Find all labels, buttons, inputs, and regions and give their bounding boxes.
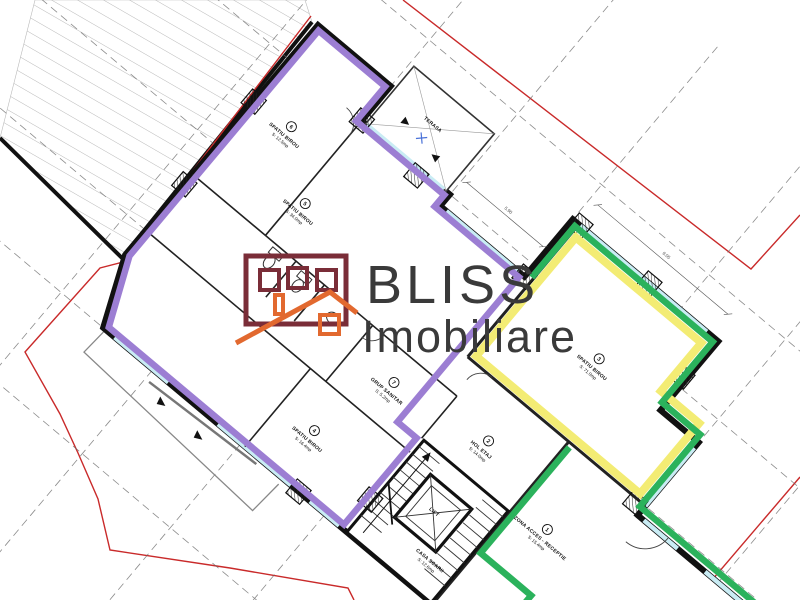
floor-plan-image: TERASA xyxy=(0,0,800,600)
floor-plan-svg: TERASA xyxy=(0,0,800,600)
watermark-subtitle: Imobiliare xyxy=(362,311,577,362)
watermark-title: BLISS xyxy=(366,255,539,315)
slope-arrow-icon xyxy=(192,430,205,443)
dimension-value: 5.90 xyxy=(504,206,514,216)
slope-arrow-icon xyxy=(155,397,168,410)
dimension-value: 9.05 xyxy=(661,251,671,261)
